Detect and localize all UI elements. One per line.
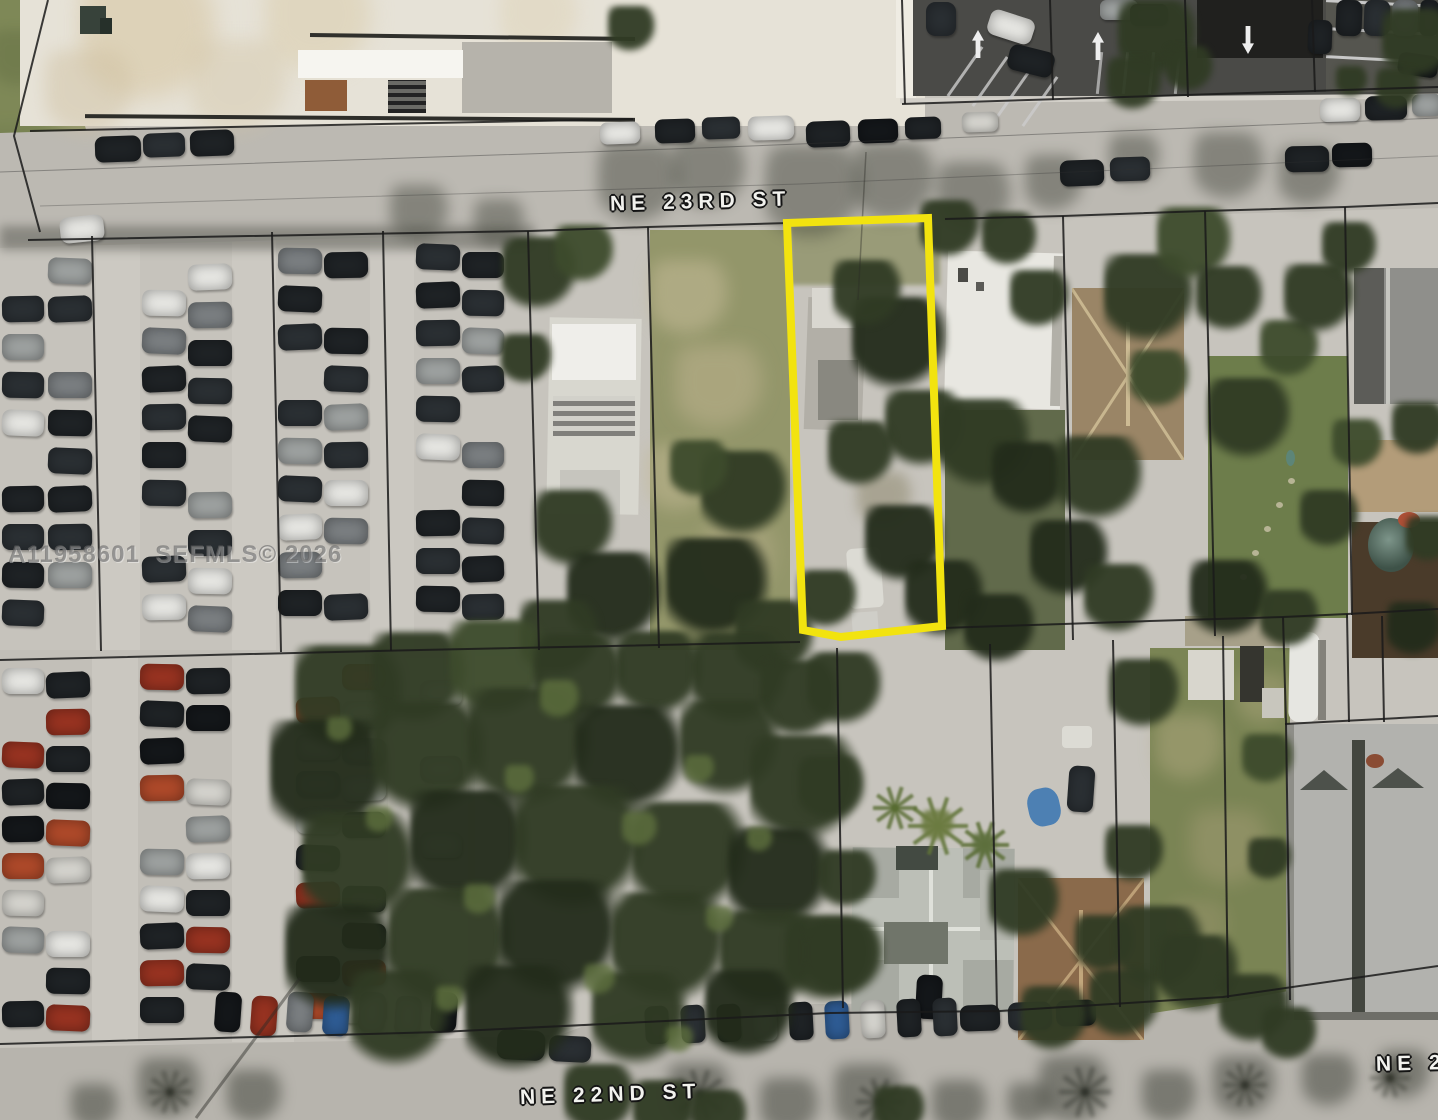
roof-vent xyxy=(976,282,984,291)
roof-stain xyxy=(45,50,135,140)
tree-highlight xyxy=(505,765,535,795)
roof-rust xyxy=(1366,754,1384,768)
car xyxy=(45,819,90,847)
car xyxy=(188,340,232,366)
car xyxy=(1,926,44,954)
tree-canopy xyxy=(705,970,795,1060)
car xyxy=(415,243,460,271)
car xyxy=(1332,143,1372,168)
tree-canopy xyxy=(1010,270,1070,330)
car xyxy=(47,295,92,323)
tree-canopy xyxy=(1336,66,1368,98)
car xyxy=(45,856,90,884)
tree-canopy xyxy=(670,440,730,500)
tree-shadow xyxy=(1142,1070,1198,1120)
small-roof xyxy=(1240,646,1264,702)
car xyxy=(324,328,369,355)
car xyxy=(2,1001,45,1028)
car xyxy=(858,118,899,143)
car xyxy=(2,486,45,513)
car xyxy=(186,853,231,880)
car xyxy=(139,737,184,765)
tree-shadow xyxy=(227,1070,283,1120)
car xyxy=(140,960,185,987)
tree-canopy xyxy=(1392,402,1438,458)
car xyxy=(806,120,851,148)
car xyxy=(95,135,142,163)
car xyxy=(2,890,45,917)
tree-highlight xyxy=(540,680,580,720)
tree-highlight xyxy=(366,806,394,834)
car xyxy=(748,115,795,141)
tree-canopy xyxy=(1260,590,1320,650)
car xyxy=(48,372,92,398)
tree-canopy xyxy=(798,570,858,630)
car xyxy=(140,664,185,691)
tree-canopy xyxy=(1242,734,1294,786)
tree-canopy xyxy=(608,6,656,54)
tree-canopy xyxy=(989,869,1061,941)
roof-section xyxy=(462,42,612,113)
tree-highlight xyxy=(327,717,353,743)
car xyxy=(186,890,230,916)
car xyxy=(142,290,187,317)
parking-aisle xyxy=(92,656,138,1042)
tree-canopy xyxy=(964,594,1036,666)
roof-seam xyxy=(1352,740,1365,1020)
car xyxy=(139,700,184,728)
car xyxy=(1307,20,1332,55)
car xyxy=(142,442,186,468)
car xyxy=(324,252,369,279)
car xyxy=(323,365,368,393)
shadow xyxy=(1318,640,1326,720)
car xyxy=(462,290,505,317)
tree-canopy xyxy=(1190,560,1270,640)
car xyxy=(2,853,44,879)
car xyxy=(142,404,187,431)
tree-shadow xyxy=(1194,132,1266,204)
tree-highlight xyxy=(436,986,464,1014)
car xyxy=(185,778,230,806)
roof-stain xyxy=(190,40,290,140)
car xyxy=(926,2,956,36)
car xyxy=(277,513,322,541)
car xyxy=(140,775,185,802)
car xyxy=(45,1004,90,1032)
tree-shadow xyxy=(390,185,450,245)
tree-highlight xyxy=(584,964,616,996)
tree-canopy xyxy=(465,965,575,1075)
tree-highlight xyxy=(685,755,715,785)
car xyxy=(140,849,185,876)
car xyxy=(186,927,231,954)
car xyxy=(47,447,92,475)
car xyxy=(188,378,233,405)
tree-canopy xyxy=(1021,986,1089,1054)
car xyxy=(960,1004,1001,1031)
car xyxy=(140,997,184,1023)
parking-aisle xyxy=(232,240,276,650)
street-label-ne-2-partial: NE 2 xyxy=(1376,1051,1438,1077)
car xyxy=(188,492,233,519)
car xyxy=(461,517,504,545)
shed-roof xyxy=(553,396,635,436)
car xyxy=(1060,159,1105,187)
car xyxy=(45,671,90,699)
car xyxy=(277,323,322,351)
car xyxy=(143,132,186,157)
car xyxy=(416,586,461,613)
tree-canopy xyxy=(1084,564,1156,636)
car xyxy=(46,709,91,736)
parking-aisle xyxy=(370,236,414,648)
tree-canopy xyxy=(805,920,885,1000)
car xyxy=(1,741,44,769)
car xyxy=(185,963,230,991)
roof-stairs xyxy=(388,80,426,113)
tree-canopy xyxy=(350,970,450,1070)
tree-canopy xyxy=(1089,969,1161,1041)
car xyxy=(46,783,91,810)
car xyxy=(896,998,922,1037)
tree-canopy xyxy=(828,421,896,489)
car xyxy=(462,252,504,278)
roof-rust xyxy=(305,80,347,111)
tree-canopy xyxy=(1056,436,1144,524)
car xyxy=(141,327,186,355)
tree-shadow xyxy=(1008,1083,1052,1120)
tree-shadow xyxy=(71,1084,119,1120)
tarp xyxy=(1024,785,1063,829)
car xyxy=(47,485,92,513)
car xyxy=(186,668,231,695)
car xyxy=(415,433,460,461)
stepping-stone xyxy=(1288,478,1295,484)
tree-canopy xyxy=(1248,838,1292,882)
shed-roof xyxy=(552,324,636,380)
stepping-stone xyxy=(1252,550,1259,556)
tree-highlight xyxy=(464,884,496,916)
tree-canopy xyxy=(920,200,980,260)
tree-canopy xyxy=(818,850,878,910)
car xyxy=(278,590,322,616)
car xyxy=(1,778,44,806)
tree-canopy xyxy=(807,652,883,728)
car xyxy=(416,548,460,574)
tree-canopy xyxy=(1166,46,1214,94)
car xyxy=(415,281,460,309)
car xyxy=(461,555,504,583)
car xyxy=(461,327,504,355)
car xyxy=(185,815,230,843)
roof-shadow xyxy=(1354,268,1384,404)
car xyxy=(46,746,90,772)
car xyxy=(1320,98,1360,123)
car xyxy=(461,365,504,393)
palm-tree xyxy=(922,810,954,842)
car xyxy=(46,931,90,957)
dirt-patch xyxy=(650,260,730,340)
car xyxy=(416,396,461,423)
tree-canopy xyxy=(1322,222,1378,278)
car xyxy=(1,599,44,627)
tree-canopy xyxy=(1376,68,1420,112)
tree-canopy xyxy=(874,1086,926,1120)
car xyxy=(250,995,279,1037)
car xyxy=(1,409,44,437)
car xyxy=(278,248,323,275)
car xyxy=(462,480,505,507)
car xyxy=(2,334,44,360)
car xyxy=(142,594,187,621)
car xyxy=(932,997,958,1036)
car xyxy=(2,668,44,694)
car xyxy=(600,121,641,144)
tree-canopy xyxy=(1196,266,1264,334)
tree-canopy xyxy=(1105,825,1165,885)
car xyxy=(139,885,184,913)
car xyxy=(323,403,368,431)
parking-aisle xyxy=(96,240,140,650)
car xyxy=(462,594,505,621)
car xyxy=(1110,156,1151,181)
flat-roof xyxy=(1197,0,1323,58)
shed-roof xyxy=(100,18,112,34)
roof-section xyxy=(298,50,463,78)
tree-highlight xyxy=(747,827,773,853)
dirt-patch xyxy=(675,345,765,435)
car xyxy=(2,296,45,323)
car xyxy=(187,605,232,633)
car xyxy=(277,285,322,313)
car xyxy=(59,214,105,244)
roof-vent xyxy=(958,268,968,282)
car xyxy=(1066,765,1095,813)
car xyxy=(416,510,461,537)
car xyxy=(48,410,93,437)
roof-patch xyxy=(884,922,948,964)
tree-canopy xyxy=(1109,659,1181,731)
car xyxy=(2,372,45,399)
car xyxy=(187,263,232,291)
car xyxy=(278,400,322,426)
car xyxy=(139,922,184,950)
tree-canopy xyxy=(1332,419,1384,471)
car xyxy=(214,991,243,1033)
small-roof xyxy=(1262,688,1284,718)
mls-watermark: A11958601 SEFMLS© 2026 xyxy=(8,541,342,569)
tree-canopy xyxy=(1387,602,1438,658)
car xyxy=(324,442,369,469)
tree-highlight xyxy=(706,906,734,934)
stepping-stone xyxy=(1264,526,1271,532)
car xyxy=(905,116,942,139)
tree-canopy xyxy=(1208,378,1292,462)
tree-canopy xyxy=(1406,516,1438,564)
car xyxy=(46,968,91,995)
car xyxy=(188,302,233,329)
tree-canopy xyxy=(982,212,1038,268)
street-label-ne-23rd: NE 23RD ST xyxy=(610,187,792,216)
tree-canopy xyxy=(1107,57,1163,113)
tree-highlight xyxy=(666,1026,694,1054)
car xyxy=(142,480,187,507)
car xyxy=(324,480,368,506)
tree-shadow xyxy=(760,1078,820,1120)
tree-canopy xyxy=(555,225,615,285)
tree-canopy xyxy=(833,260,903,330)
tree-canopy xyxy=(798,756,866,824)
car xyxy=(416,320,461,347)
car xyxy=(824,1000,850,1039)
car xyxy=(187,415,232,443)
tree-canopy xyxy=(1130,350,1190,410)
car xyxy=(962,111,999,132)
car xyxy=(416,358,460,384)
tree-canopy xyxy=(1300,490,1360,550)
tree-canopy xyxy=(501,334,553,386)
roof-ridge xyxy=(1386,268,1390,404)
car xyxy=(462,442,504,468)
palm-tree xyxy=(973,833,997,857)
car xyxy=(323,593,368,621)
tree-shadow xyxy=(932,1080,988,1120)
tree-canopy xyxy=(1262,1007,1318,1063)
small-roof xyxy=(1188,650,1234,700)
car xyxy=(188,568,233,595)
vehicle xyxy=(1062,726,1092,748)
car xyxy=(278,438,323,465)
car xyxy=(277,475,322,503)
car xyxy=(186,705,230,731)
car xyxy=(702,116,741,139)
stepping-stone xyxy=(1276,502,1283,508)
car xyxy=(1335,0,1362,36)
tree-highlight xyxy=(622,812,658,848)
car xyxy=(2,816,45,843)
car xyxy=(860,999,886,1038)
car xyxy=(190,129,235,157)
car xyxy=(1285,146,1329,173)
car xyxy=(655,118,696,143)
car xyxy=(47,257,92,285)
aerial-map: NE 23RD ST NE 22ND ST NE 2 A11958601 SEF… xyxy=(0,0,1438,1120)
car xyxy=(141,365,186,393)
